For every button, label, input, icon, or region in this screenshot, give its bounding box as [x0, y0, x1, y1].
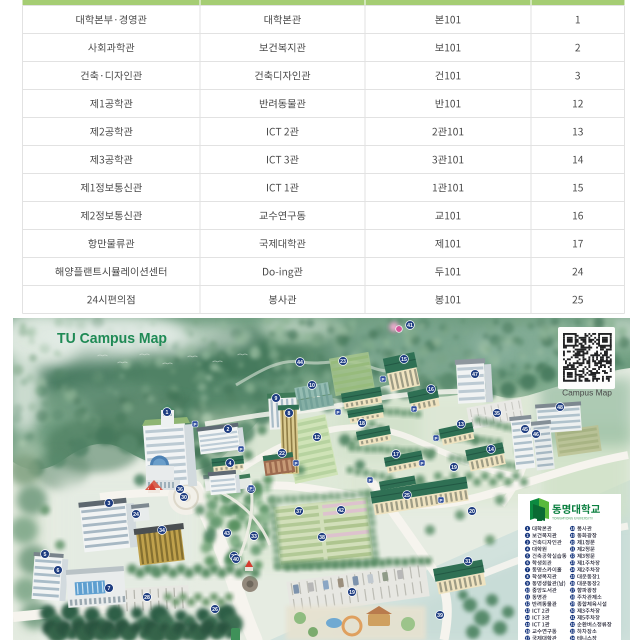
- svg-text:P: P: [434, 436, 437, 441]
- svg-text:43: 43: [224, 531, 230, 537]
- svg-text:39: 39: [437, 613, 443, 619]
- svg-text:20: 20: [469, 509, 475, 515]
- svg-text:P: P: [193, 422, 196, 427]
- svg-text:40: 40: [233, 557, 239, 563]
- svg-text:19: 19: [349, 590, 355, 596]
- svg-text:12: 12: [314, 435, 320, 441]
- svg-text:46: 46: [533, 432, 539, 438]
- svg-text:35: 35: [494, 411, 500, 417]
- svg-text:3: 3: [108, 501, 111, 507]
- svg-text:38: 38: [319, 535, 325, 541]
- svg-text:26: 26: [212, 607, 218, 613]
- svg-text:14: 14: [488, 447, 494, 453]
- svg-text:30: 30: [181, 495, 187, 501]
- svg-text:P: P: [249, 486, 252, 491]
- svg-text:25: 25: [404, 493, 410, 499]
- svg-text:TU Campus Map: TU Campus Map: [57, 330, 167, 347]
- svg-text:4: 4: [229, 461, 232, 467]
- svg-text:P: P: [420, 461, 423, 466]
- svg-text:17: 17: [393, 452, 399, 458]
- svg-text:6: 6: [57, 568, 60, 574]
- svg-text:19: 19: [451, 465, 457, 471]
- svg-text:47: 47: [472, 372, 478, 378]
- svg-text:41: 41: [407, 323, 413, 329]
- svg-text:P: P: [294, 461, 297, 466]
- svg-text:33: 33: [251, 534, 257, 540]
- svg-text:28: 28: [144, 595, 150, 601]
- svg-text:18: 18: [359, 421, 365, 427]
- svg-text:10: 10: [309, 383, 315, 389]
- svg-text:36: 36: [177, 487, 183, 493]
- svg-text:P: P: [381, 377, 384, 382]
- svg-text:13: 13: [458, 422, 464, 428]
- svg-text:44: 44: [297, 360, 303, 366]
- svg-text:16: 16: [428, 387, 434, 393]
- svg-text:8: 8: [288, 411, 291, 417]
- svg-text:9: 9: [275, 396, 278, 402]
- svg-text:P: P: [368, 478, 371, 483]
- svg-text:15: 15: [401, 357, 407, 363]
- svg-text:22: 22: [279, 451, 285, 457]
- svg-text:48: 48: [557, 405, 563, 411]
- svg-text:45: 45: [522, 427, 528, 433]
- svg-text:31: 31: [465, 559, 471, 565]
- svg-text:7: 7: [108, 586, 111, 592]
- svg-text:Campus Map: Campus Map: [562, 388, 612, 398]
- svg-text:34: 34: [159, 528, 165, 534]
- svg-text:37: 37: [296, 509, 302, 515]
- svg-text:P: P: [439, 498, 442, 503]
- svg-text:42: 42: [338, 508, 344, 514]
- svg-text:24: 24: [133, 512, 139, 518]
- svg-text:P: P: [239, 447, 242, 452]
- svg-text:P: P: [336, 410, 339, 415]
- svg-text:23: 23: [340, 359, 346, 365]
- svg-text:2: 2: [227, 427, 230, 433]
- svg-text:P: P: [412, 407, 415, 412]
- svg-text:1: 1: [166, 410, 169, 416]
- svg-text:5: 5: [44, 552, 47, 558]
